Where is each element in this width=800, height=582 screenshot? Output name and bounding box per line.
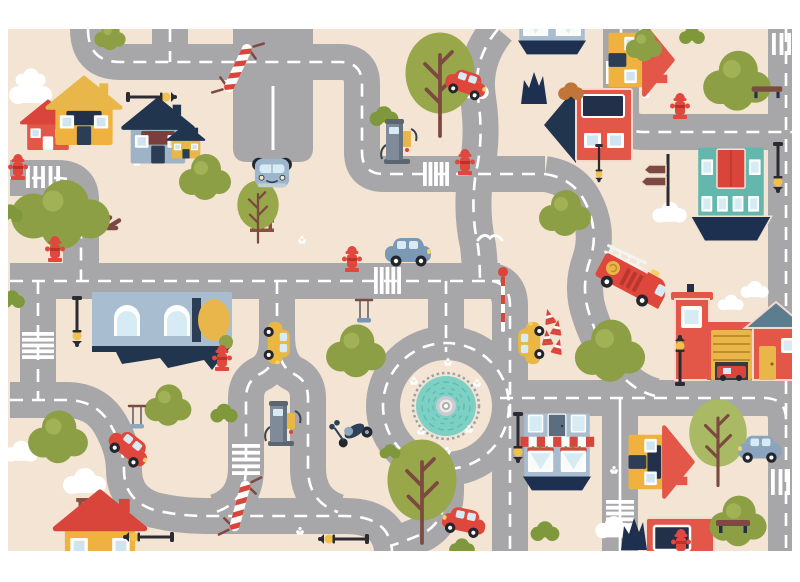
car-blue-front-view bbox=[252, 158, 292, 187]
cafe-shop-top-cut bbox=[515, 0, 589, 54]
tree-fluffy bbox=[94, 23, 125, 51]
cafe-shop bbox=[520, 413, 594, 490]
crosswalk bbox=[772, 33, 791, 55]
crosswalk bbox=[771, 469, 790, 495]
mat-art-layer bbox=[0, 0, 800, 574]
playmat-frame bbox=[0, 0, 800, 582]
building-teal-boat bbox=[690, 148, 771, 242]
playmat-illustration bbox=[0, 0, 800, 582]
page: { "canvas": {"width": 800, "height": 582… bbox=[0, 0, 800, 582]
